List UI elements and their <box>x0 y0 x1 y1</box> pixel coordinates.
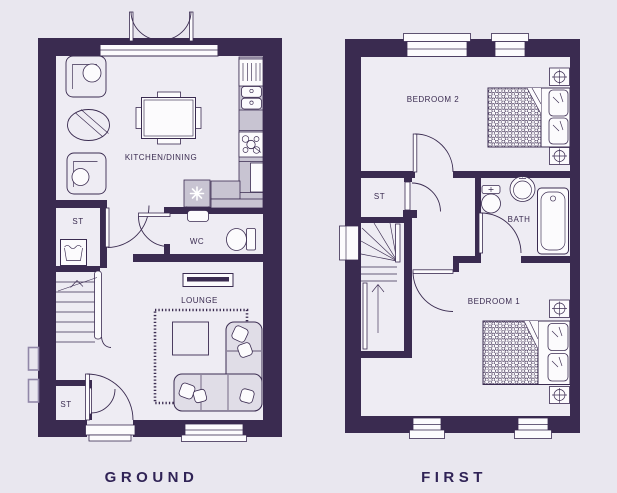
worktop <box>211 199 263 208</box>
dining-chair <box>196 108 202 129</box>
ground-title: GROUND <box>105 469 199 486</box>
door-leaf <box>413 270 453 274</box>
worktop <box>211 181 240 199</box>
tall-unit <box>251 163 264 192</box>
ground-floor-plan: KITCHEN/DINING ST <box>29 12 283 486</box>
door-swing <box>131 12 161 40</box>
wc-toilet <box>227 229 256 251</box>
door-leaf <box>413 134 417 172</box>
room-label-bedroom1: BEDROOM 1 <box>468 297 521 306</box>
fridge-freezer <box>184 180 210 207</box>
meter-box <box>29 380 39 403</box>
tv-unit <box>183 274 233 287</box>
room-label-wc: WC <box>190 237 204 246</box>
toilet <box>482 186 501 214</box>
floorplan-page: KITCHEN/DINING ST <box>0 0 617 493</box>
dining-table <box>136 92 201 144</box>
cushion <box>72 169 89 186</box>
pillow <box>548 354 568 382</box>
dining-chair <box>136 108 142 129</box>
window-sill <box>492 34 529 42</box>
freezer-snowflake-icon <box>191 187 204 200</box>
room-label-store: ST <box>374 192 385 201</box>
door-leaf <box>106 208 110 247</box>
door-leaf <box>190 12 194 41</box>
step <box>89 435 131 441</box>
door-leaf <box>86 374 90 420</box>
window <box>492 34 529 57</box>
pillow <box>549 118 568 144</box>
washing-machine-icon <box>61 240 87 266</box>
draining-board <box>239 59 263 86</box>
bedside-table <box>550 68 570 86</box>
room-label-lounge: LOUNGE <box>181 296 218 305</box>
door-leaf <box>405 182 410 210</box>
window <box>410 418 445 439</box>
bedside-table <box>550 300 570 318</box>
floorplan-canvas: KITCHEN/DINING ST <box>0 0 617 493</box>
hob <box>239 132 263 157</box>
room-label-bath: BATH <box>508 215 531 224</box>
dining-chair <box>158 139 181 145</box>
threshold <box>86 425 136 435</box>
double-bed <box>488 88 570 147</box>
door-swing <box>161 12 191 40</box>
meter-box <box>29 348 39 371</box>
french-doors <box>100 12 218 56</box>
stair-rail <box>363 283 367 349</box>
first-floor-plan: BEDROOM 2 <box>340 34 581 487</box>
stair-rail <box>95 271 102 339</box>
bedside-table <box>550 148 570 165</box>
window <box>404 34 471 57</box>
room-label-store-upper: ST <box>72 217 83 226</box>
double-bed <box>483 321 570 385</box>
window-sill <box>410 430 445 439</box>
kitchen-counter <box>239 57 263 208</box>
door-leaf <box>479 213 483 253</box>
window <box>340 226 359 260</box>
room-label-store-lower: ST <box>60 400 71 409</box>
bathtub <box>538 188 569 254</box>
dining-chair <box>158 92 181 98</box>
pan <box>247 140 255 148</box>
door-leaf <box>139 213 171 217</box>
window-sill <box>515 430 552 439</box>
window-sill <box>182 435 247 442</box>
room-label-kitchen-dining: KITCHEN/DINING <box>125 153 197 162</box>
pillow <box>549 90 568 116</box>
room-label-bedroom2: BEDROOM 2 <box>407 95 460 104</box>
side-table <box>83 64 101 82</box>
stair-rail <box>396 224 401 262</box>
lounge-window <box>182 424 247 442</box>
first-title: FIRST <box>421 469 487 486</box>
window-sill <box>404 34 471 42</box>
bedside-table <box>550 387 570 404</box>
window <box>515 418 552 439</box>
